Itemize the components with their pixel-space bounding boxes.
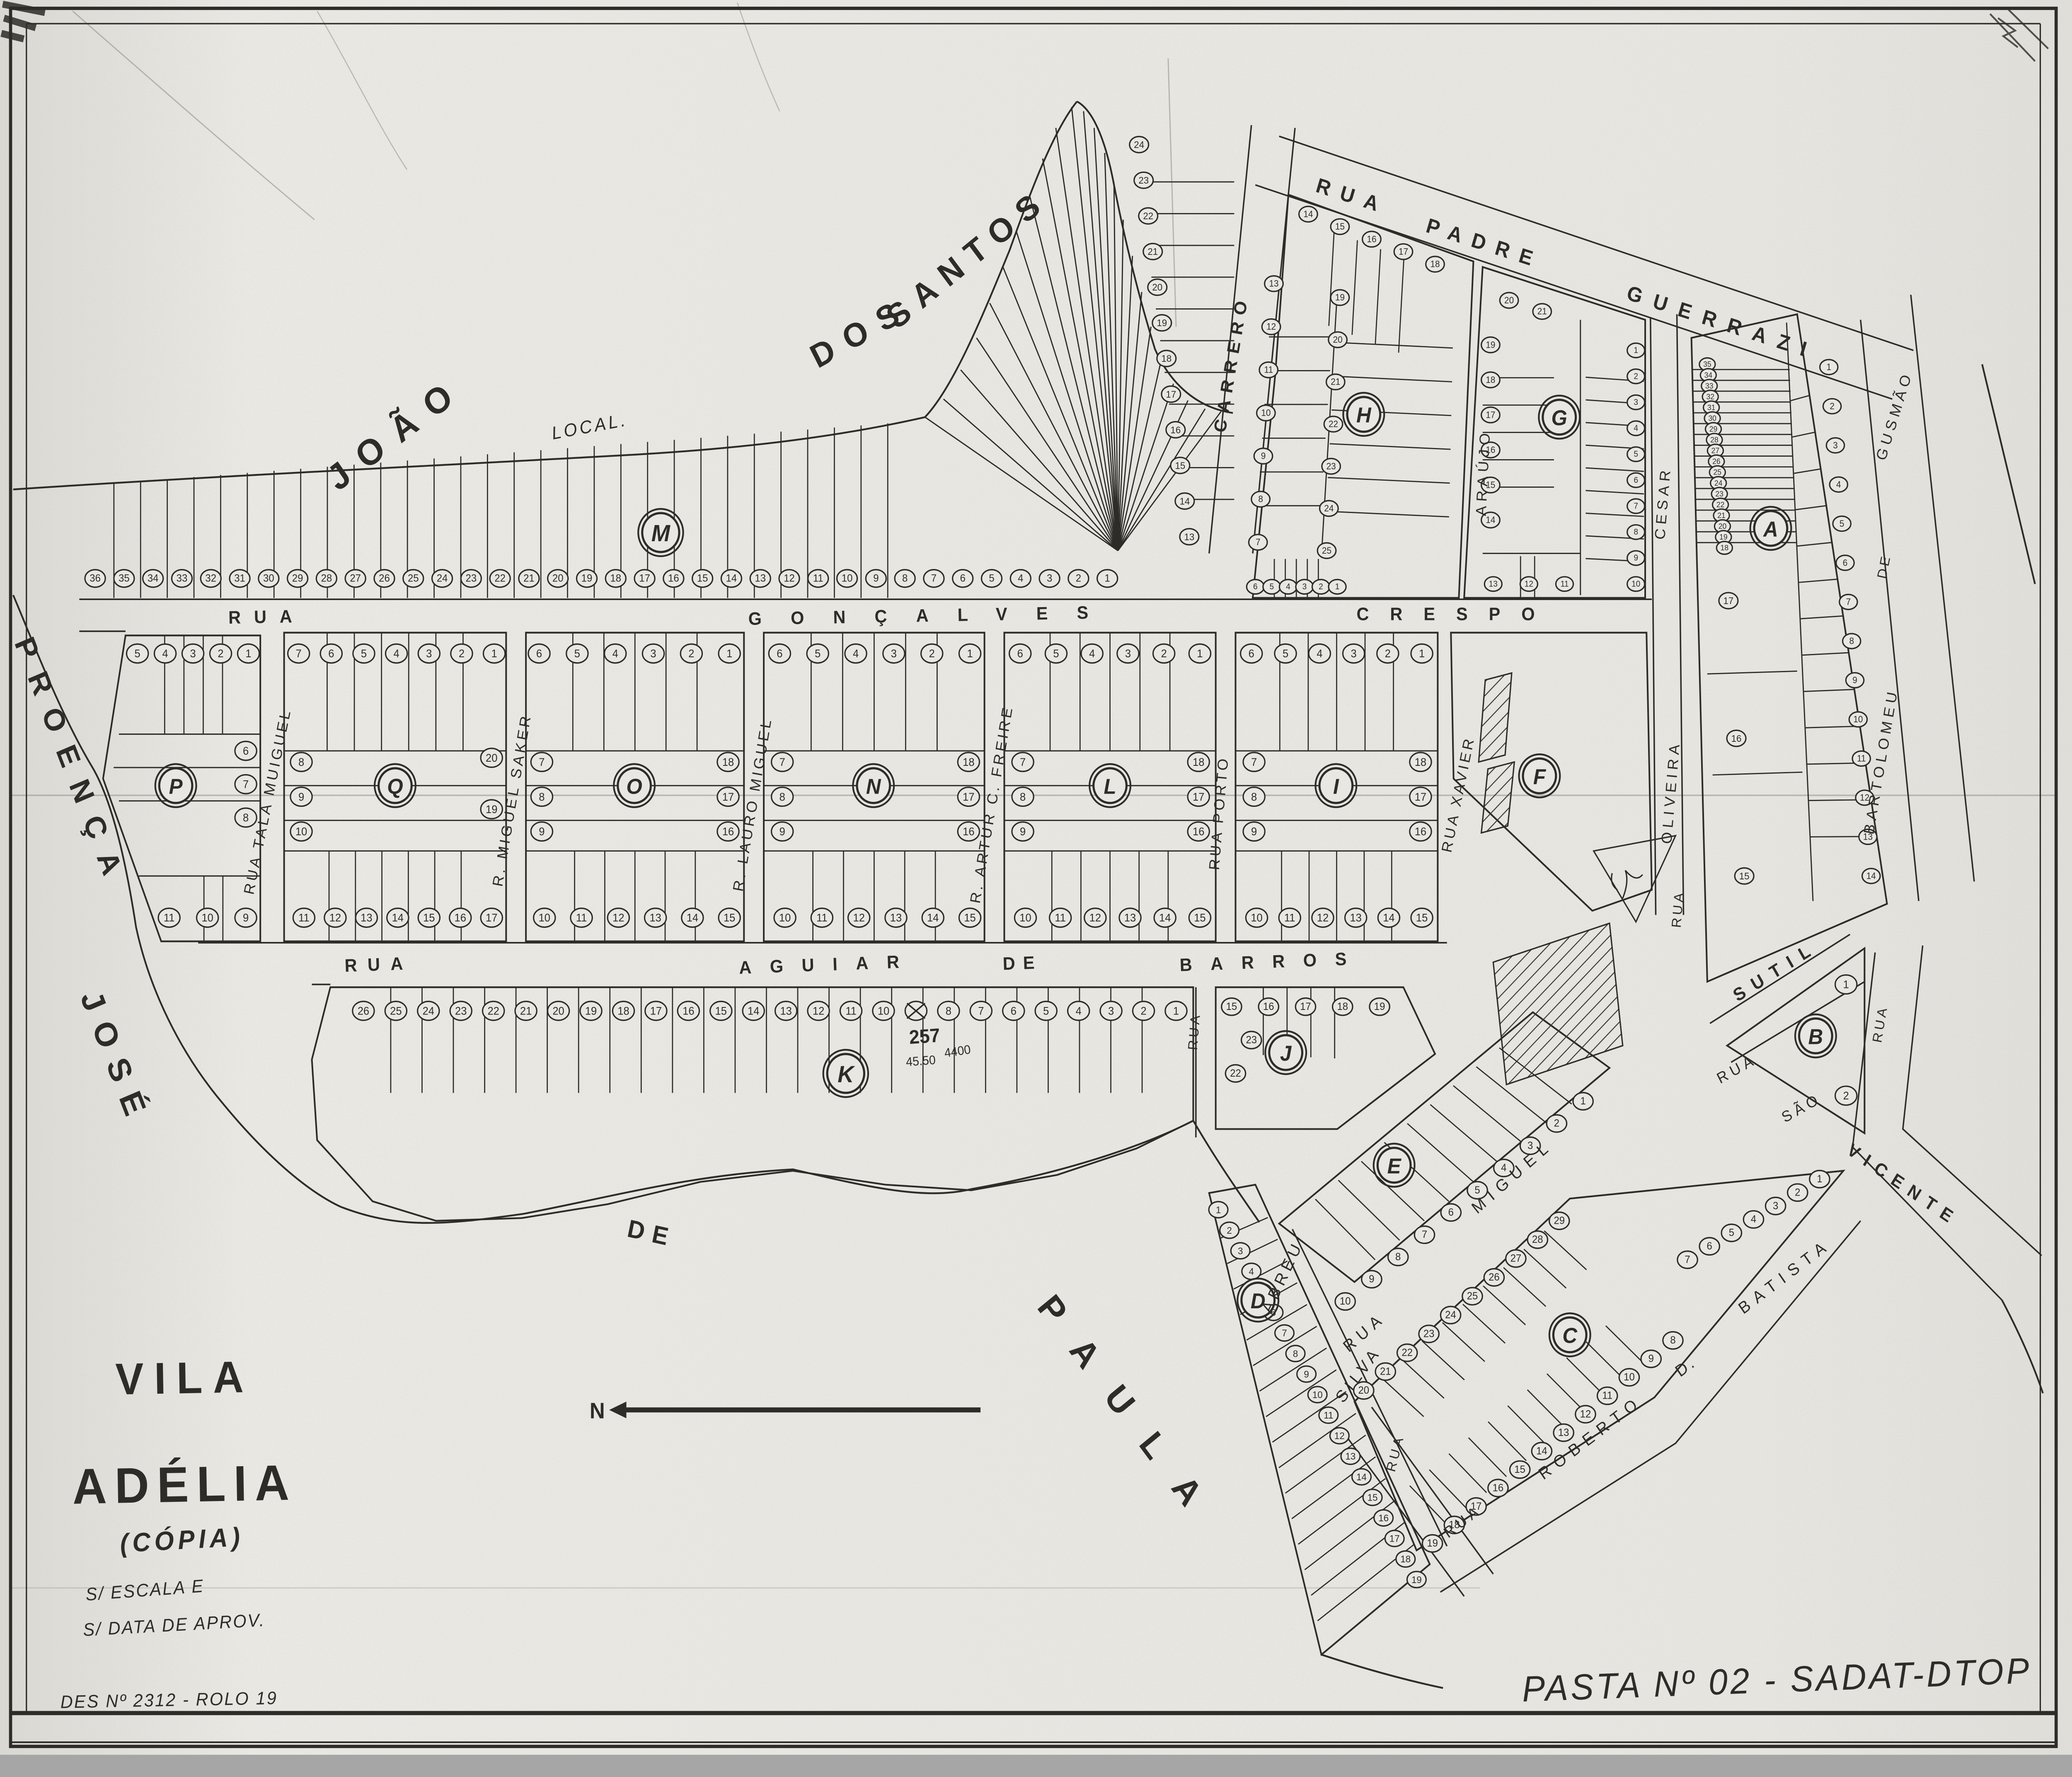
lot-H-11: 11 bbox=[1259, 362, 1278, 378]
svg-text:19: 19 bbox=[1719, 533, 1728, 542]
lot-N-4: 4 bbox=[845, 644, 867, 663]
svg-text:7: 7 bbox=[1251, 755, 1257, 768]
svg-text:16: 16 bbox=[1493, 1482, 1504, 1494]
svg-text:2: 2 bbox=[1076, 573, 1081, 584]
lot-Q-2: 2 bbox=[451, 644, 472, 663]
svg-text:4: 4 bbox=[1286, 582, 1290, 592]
lot-K-26: 26 bbox=[353, 1001, 374, 1020]
block-letter-H: H bbox=[1343, 393, 1384, 436]
lot-M-10: 10 bbox=[837, 570, 857, 587]
svg-text:22: 22 bbox=[1716, 501, 1725, 509]
lot-C-9: 9 bbox=[1641, 1350, 1661, 1368]
lot-C-4: 4 bbox=[1743, 1211, 1763, 1228]
lot-N-3: 3 bbox=[883, 644, 905, 663]
lot-I-13: 13 bbox=[1345, 908, 1367, 927]
svg-text:18: 18 bbox=[1721, 544, 1729, 552]
lot-G-21: 21 bbox=[1533, 304, 1552, 320]
lot-A-9: 9 bbox=[1846, 673, 1864, 688]
svg-text:22: 22 bbox=[1329, 419, 1338, 429]
svg-text:4: 4 bbox=[162, 647, 168, 660]
lot-J-23: 23 bbox=[1242, 1031, 1261, 1049]
lot-J-16: 16 bbox=[1259, 998, 1278, 1015]
svg-text:27: 27 bbox=[1510, 1253, 1522, 1264]
label-annotations-k_numbers-0: 257 bbox=[908, 1024, 941, 1048]
lot-L-1: 1 bbox=[1189, 644, 1210, 663]
lot-D-19: 19 bbox=[1407, 1571, 1426, 1588]
svg-text:2: 2 bbox=[929, 647, 935, 660]
lot-D-12: 12 bbox=[1330, 1428, 1349, 1444]
svg-text:12: 12 bbox=[1089, 911, 1101, 924]
svg-text:5: 5 bbox=[815, 647, 821, 660]
svg-text:G: G bbox=[1552, 406, 1567, 430]
lot-K-1: 1 bbox=[1165, 1001, 1187, 1020]
svg-text:6: 6 bbox=[1011, 1005, 1017, 1017]
svg-text:20: 20 bbox=[1504, 295, 1514, 305]
svg-text:11: 11 bbox=[845, 1005, 856, 1017]
svg-text:10: 10 bbox=[1853, 714, 1863, 725]
label-title-word1: VILA bbox=[115, 1352, 254, 1404]
lot-D-3: 3 bbox=[1231, 1243, 1250, 1259]
lot-N-15: 15 bbox=[959, 908, 980, 927]
svg-text:3: 3 bbox=[1302, 582, 1307, 592]
lot-J-18: 18 bbox=[1333, 998, 1353, 1015]
svg-text:23: 23 bbox=[1246, 1034, 1257, 1046]
svg-text:13: 13 bbox=[1184, 531, 1194, 542]
svg-text:9: 9 bbox=[1369, 1273, 1374, 1285]
lot-O-13: 13 bbox=[644, 908, 666, 927]
svg-text:14: 14 bbox=[392, 911, 404, 924]
lot-A-15: 15 bbox=[1735, 868, 1754, 884]
svg-text:7: 7 bbox=[1282, 1327, 1287, 1339]
label-north_indicator: N bbox=[590, 1399, 605, 1423]
svg-text:3: 3 bbox=[190, 647, 196, 660]
lot-G-13: 13 bbox=[1484, 577, 1502, 591]
svg-text:22: 22 bbox=[1402, 1347, 1413, 1358]
lot-G-12: 12 bbox=[1520, 577, 1537, 591]
svg-text:23: 23 bbox=[1138, 175, 1149, 186]
svg-text:15: 15 bbox=[697, 573, 708, 584]
svg-text:12: 12 bbox=[853, 911, 865, 924]
lot-N-7: 7 bbox=[772, 753, 793, 772]
lot-J-19: 19 bbox=[1370, 998, 1389, 1015]
lot-M-29: 29 bbox=[288, 570, 308, 587]
svg-text:7: 7 bbox=[1685, 1254, 1690, 1266]
svg-text:18: 18 bbox=[722, 755, 734, 768]
lot-G-1: 1 bbox=[1627, 343, 1645, 358]
svg-text:17: 17 bbox=[639, 573, 650, 584]
lot-M-28: 28 bbox=[316, 570, 336, 587]
svg-text:H: H bbox=[1356, 403, 1372, 427]
lot-S-13: 13 bbox=[1180, 529, 1199, 545]
svg-text:5: 5 bbox=[1043, 1005, 1049, 1017]
svg-text:13: 13 bbox=[1124, 911, 1136, 924]
lot-D-17: 17 bbox=[1385, 1530, 1404, 1547]
label-footer-drawing_ref: DES Nº 2312 - ROLO 19 bbox=[60, 1688, 278, 1712]
lot-P-5: 5 bbox=[126, 644, 148, 663]
block-letter-O: O bbox=[614, 764, 655, 807]
lot-N-2: 2 bbox=[921, 644, 943, 663]
lot-L-4: 4 bbox=[1081, 644, 1103, 663]
svg-text:11: 11 bbox=[1602, 1390, 1612, 1402]
lot-K-12: 12 bbox=[808, 1001, 829, 1020]
svg-text:17: 17 bbox=[1723, 595, 1734, 606]
lot-G-2: 2 bbox=[1627, 369, 1645, 384]
svg-text:2: 2 bbox=[1161, 647, 1167, 660]
svg-text:29: 29 bbox=[1554, 1215, 1565, 1227]
svg-text:8: 8 bbox=[1634, 528, 1638, 537]
svg-text:18: 18 bbox=[1161, 353, 1172, 364]
svg-text:10: 10 bbox=[779, 911, 791, 924]
lot-Q-20: 20 bbox=[481, 748, 502, 767]
svg-text:20: 20 bbox=[1152, 282, 1162, 293]
block-letter-B: B bbox=[1795, 1014, 1836, 1058]
lot-I-15: 15 bbox=[1411, 908, 1433, 927]
lot-Q-3: 3 bbox=[418, 644, 440, 663]
lot-H-3: 3 bbox=[1296, 579, 1313, 594]
svg-text:19: 19 bbox=[585, 1005, 597, 1017]
svg-text:1: 1 bbox=[1419, 647, 1425, 660]
scanned-plat-sheet: 3635343332313029282726252423222120191817… bbox=[0, 0, 2072, 1777]
svg-text:31: 31 bbox=[1707, 403, 1716, 412]
lot-Q-6: 6 bbox=[320, 644, 342, 663]
lot-H-9: 9 bbox=[1254, 448, 1273, 464]
svg-text:19: 19 bbox=[1157, 317, 1167, 329]
lot-S-20: 20 bbox=[1148, 279, 1167, 295]
lot-Q-13: 13 bbox=[356, 908, 377, 927]
svg-text:19: 19 bbox=[486, 803, 497, 816]
svg-text:23: 23 bbox=[1326, 461, 1336, 472]
svg-text:14: 14 bbox=[1303, 209, 1313, 219]
svg-text:13: 13 bbox=[1269, 278, 1278, 289]
svg-text:3: 3 bbox=[1108, 1005, 1114, 1017]
lot-C-7: 7 bbox=[1677, 1251, 1697, 1269]
lot-I-6: 6 bbox=[1241, 644, 1262, 663]
svg-text:4: 4 bbox=[1634, 424, 1638, 433]
svg-text:6: 6 bbox=[777, 647, 782, 660]
svg-text:6: 6 bbox=[1707, 1241, 1712, 1252]
lot-G-3: 3 bbox=[1627, 395, 1645, 409]
svg-text:M: M bbox=[651, 520, 671, 547]
lot-J-22: 22 bbox=[1225, 1065, 1245, 1082]
svg-text:F: F bbox=[1533, 765, 1547, 789]
svg-text:16: 16 bbox=[455, 911, 466, 924]
svg-text:9: 9 bbox=[1648, 1353, 1654, 1365]
lot-M-7: 7 bbox=[924, 570, 944, 587]
lot-N-17: 17 bbox=[958, 787, 979, 806]
svg-text:6: 6 bbox=[243, 744, 249, 757]
svg-text:2: 2 bbox=[459, 647, 465, 660]
svg-text:28: 28 bbox=[1532, 1234, 1543, 1246]
lot-A-18: 18 bbox=[1716, 542, 1732, 554]
svg-text:3: 3 bbox=[1047, 573, 1052, 584]
lot-O-14: 14 bbox=[682, 908, 703, 927]
lot-M-11: 11 bbox=[808, 570, 828, 587]
svg-text:23: 23 bbox=[1715, 489, 1723, 498]
lot-A-2: 2 bbox=[1823, 399, 1841, 414]
svg-text:19: 19 bbox=[581, 573, 593, 584]
svg-text:16: 16 bbox=[1378, 1512, 1389, 1523]
lot-Q-7: 7 bbox=[288, 644, 310, 663]
svg-text:9: 9 bbox=[243, 911, 249, 924]
svg-text:32: 32 bbox=[1706, 392, 1714, 401]
svg-text:22: 22 bbox=[494, 573, 506, 584]
svg-text:6: 6 bbox=[536, 647, 542, 660]
block-letter-A: A bbox=[1750, 507, 1791, 550]
lot-M-21: 21 bbox=[519, 570, 539, 587]
svg-text:7: 7 bbox=[1256, 537, 1261, 547]
svg-text:24: 24 bbox=[1134, 139, 1144, 150]
svg-text:18: 18 bbox=[963, 755, 974, 768]
lot-K-24: 24 bbox=[418, 1001, 439, 1020]
svg-text:26: 26 bbox=[1489, 1272, 1500, 1283]
svg-text:11: 11 bbox=[1561, 579, 1569, 589]
svg-text:1: 1 bbox=[967, 647, 973, 660]
lot-S-19: 19 bbox=[1152, 315, 1172, 331]
lot-N-6: 6 bbox=[769, 644, 790, 663]
svg-text:8: 8 bbox=[539, 790, 545, 803]
label-streets-aguiar_de_barros-0: RUA bbox=[344, 953, 414, 976]
block-letter-E: E bbox=[1374, 1144, 1415, 1187]
svg-text:7: 7 bbox=[539, 755, 545, 768]
label-streets-goncalves_crespo-2: CRESPO bbox=[1356, 604, 1556, 624]
lot-K-2: 2 bbox=[1133, 1001, 1154, 1020]
svg-text:24: 24 bbox=[423, 1005, 434, 1017]
svg-text:11: 11 bbox=[1055, 911, 1065, 924]
lot-H-14: 14 bbox=[1299, 206, 1318, 222]
svg-text:10: 10 bbox=[878, 1005, 889, 1017]
lot-I-17: 17 bbox=[1410, 787, 1431, 806]
svg-text:4: 4 bbox=[1089, 647, 1095, 660]
lot-M-36: 36 bbox=[85, 570, 105, 587]
lot-A-1: 1 bbox=[1820, 360, 1838, 375]
svg-text:18: 18 bbox=[1415, 755, 1426, 768]
svg-text:13: 13 bbox=[1489, 579, 1498, 589]
lot-A-7: 7 bbox=[1840, 594, 1857, 609]
svg-text:23: 23 bbox=[1423, 1328, 1435, 1340]
lot-L-12: 12 bbox=[1084, 908, 1106, 927]
lot-I-5: 5 bbox=[1275, 644, 1296, 663]
svg-text:16: 16 bbox=[1367, 234, 1376, 245]
svg-text:A: A bbox=[1762, 517, 1778, 541]
svg-text:35: 35 bbox=[119, 573, 130, 584]
lot-C-10: 10 bbox=[1619, 1369, 1639, 1386]
svg-text:17: 17 bbox=[650, 1005, 662, 1017]
svg-text:15: 15 bbox=[724, 911, 735, 924]
lot-O-8: 8 bbox=[531, 787, 552, 806]
svg-text:25: 25 bbox=[408, 573, 419, 584]
lot-M-14: 14 bbox=[721, 570, 741, 587]
svg-text:14: 14 bbox=[927, 911, 939, 924]
block-letter-I: I bbox=[1315, 764, 1356, 807]
svg-text:17: 17 bbox=[1193, 790, 1204, 803]
svg-text:25: 25 bbox=[390, 1005, 402, 1017]
svg-text:18: 18 bbox=[1430, 259, 1440, 269]
svg-text:14: 14 bbox=[1486, 515, 1495, 525]
lot-I-11: 11 bbox=[1279, 908, 1300, 927]
svg-text:L: L bbox=[1104, 774, 1116, 798]
svg-text:12: 12 bbox=[329, 911, 341, 924]
lot-D-2: 2 bbox=[1220, 1222, 1239, 1238]
svg-text:I: I bbox=[1333, 774, 1339, 798]
lot-D-14: 14 bbox=[1352, 1469, 1371, 1485]
svg-text:3: 3 bbox=[1634, 398, 1638, 407]
lot-S-22: 22 bbox=[1139, 208, 1158, 224]
svg-text:21: 21 bbox=[1537, 306, 1547, 317]
lot-Q-19: 19 bbox=[481, 800, 502, 819]
lot-L-14: 14 bbox=[1154, 908, 1176, 927]
svg-text:1: 1 bbox=[1173, 1005, 1179, 1017]
svg-text:11: 11 bbox=[1284, 911, 1295, 924]
svg-text:10: 10 bbox=[201, 911, 213, 924]
lot-I-3: 3 bbox=[1343, 644, 1364, 663]
svg-text:3: 3 bbox=[426, 647, 432, 660]
lot-Q-9: 9 bbox=[290, 787, 312, 806]
lot-N-9: 9 bbox=[772, 822, 793, 841]
svg-text:5: 5 bbox=[1053, 647, 1059, 660]
lot-Q-4: 4 bbox=[385, 644, 407, 663]
svg-text:P: P bbox=[169, 774, 183, 798]
svg-text:16: 16 bbox=[1415, 825, 1426, 838]
svg-text:7: 7 bbox=[1422, 1229, 1427, 1241]
svg-text:21: 21 bbox=[1717, 511, 1726, 520]
svg-text:13: 13 bbox=[755, 573, 766, 584]
lot-M-1: 1 bbox=[1097, 570, 1118, 587]
svg-text:C: C bbox=[1562, 1323, 1578, 1347]
lot-M-13: 13 bbox=[750, 570, 770, 587]
label-streets-aguiar_de_barros-2: DE bbox=[1002, 952, 1043, 974]
lot-M-4: 4 bbox=[1010, 570, 1031, 587]
lot-G-18: 18 bbox=[1481, 372, 1500, 388]
svg-text:16: 16 bbox=[668, 573, 679, 584]
lot-H-17: 17 bbox=[1394, 244, 1413, 260]
lot-M-26: 26 bbox=[374, 570, 395, 587]
svg-text:7: 7 bbox=[243, 778, 249, 791]
svg-text:1: 1 bbox=[245, 647, 251, 660]
svg-text:5: 5 bbox=[135, 647, 140, 660]
lot-Q-16: 16 bbox=[450, 908, 471, 927]
lot-Q-8: 8 bbox=[290, 753, 312, 772]
svg-text:8: 8 bbox=[1293, 1348, 1298, 1359]
block-letter-F: F bbox=[1519, 754, 1560, 797]
svg-text:34: 34 bbox=[1704, 371, 1713, 380]
lot-A-4: 4 bbox=[1830, 477, 1847, 492]
block-letter-J: J bbox=[1265, 1031, 1306, 1074]
lot-Q-5: 5 bbox=[353, 644, 375, 663]
plat-root: 3635343332313029282726252423222120191817… bbox=[0, 0, 2072, 1777]
svg-text:2: 2 bbox=[1830, 401, 1835, 412]
lot-L-11: 11 bbox=[1050, 908, 1071, 927]
svg-text:19: 19 bbox=[1486, 340, 1495, 350]
svg-text:11: 11 bbox=[1857, 753, 1866, 764]
lot-K-15: 15 bbox=[710, 1001, 732, 1020]
lot-K-23: 23 bbox=[450, 1001, 472, 1020]
lot-M-20: 20 bbox=[548, 570, 568, 587]
lot-E-2: 2 bbox=[1547, 1115, 1566, 1132]
lot-H-2: 2 bbox=[1312, 579, 1329, 594]
svg-text:15: 15 bbox=[1175, 460, 1185, 471]
lot-I-4: 4 bbox=[1309, 644, 1330, 663]
lot-M-8: 8 bbox=[895, 570, 915, 587]
lot-M-2: 2 bbox=[1068, 570, 1089, 587]
lot-G-10: 10 bbox=[1627, 577, 1645, 591]
lot-D-9: 9 bbox=[1297, 1366, 1316, 1382]
lot-P-4: 4 bbox=[154, 644, 176, 663]
lot-H-21: 21 bbox=[1326, 374, 1345, 390]
label-streets-rua_unnamed: RUA bbox=[1185, 1012, 1203, 1051]
lot-D-10: 10 bbox=[1308, 1387, 1327, 1403]
lot-G-4: 4 bbox=[1627, 421, 1645, 436]
lot-I-2: 2 bbox=[1377, 644, 1399, 663]
svg-text:14: 14 bbox=[726, 573, 737, 584]
svg-text:2: 2 bbox=[1319, 582, 1323, 592]
lot-M-35: 35 bbox=[114, 570, 134, 587]
svg-text:4: 4 bbox=[1317, 647, 1322, 660]
svg-text:5: 5 bbox=[1634, 450, 1638, 459]
lot-L-5: 5 bbox=[1045, 644, 1067, 663]
lot-H-1: 1 bbox=[1329, 579, 1346, 594]
lot-I-8: 8 bbox=[1243, 787, 1265, 806]
lot-C-8: 8 bbox=[1663, 1332, 1683, 1349]
lot-Q-11: 11 bbox=[293, 908, 315, 927]
svg-text:21: 21 bbox=[1147, 246, 1158, 257]
svg-text:16: 16 bbox=[722, 825, 734, 838]
block-letter-G: G bbox=[1539, 396, 1580, 439]
svg-text:19: 19 bbox=[1335, 293, 1345, 303]
lot-S-14: 14 bbox=[1175, 493, 1194, 509]
lot-O-17: 17 bbox=[717, 787, 739, 806]
svg-text:12: 12 bbox=[784, 573, 795, 584]
svg-text:26: 26 bbox=[358, 1005, 369, 1017]
svg-text:25: 25 bbox=[1714, 468, 1722, 477]
lot-C-12: 12 bbox=[1576, 1406, 1595, 1423]
lot-D-15: 15 bbox=[1363, 1489, 1382, 1506]
lot-M-25: 25 bbox=[403, 570, 424, 587]
lot-M-6: 6 bbox=[953, 570, 973, 587]
svg-text:2: 2 bbox=[1227, 1225, 1232, 1236]
lot-S-21: 21 bbox=[1143, 244, 1162, 260]
svg-text:17: 17 bbox=[1399, 247, 1408, 257]
lot-G-9: 9 bbox=[1627, 551, 1645, 565]
svg-text:28: 28 bbox=[1710, 436, 1719, 444]
svg-text:8: 8 bbox=[1251, 790, 1257, 803]
lot-Q-1: 1 bbox=[483, 644, 505, 663]
svg-text:11: 11 bbox=[1324, 1410, 1333, 1421]
svg-text:22: 22 bbox=[1143, 211, 1153, 222]
svg-text:13: 13 bbox=[1558, 1427, 1569, 1438]
svg-text:8: 8 bbox=[1849, 636, 1854, 646]
svg-text:12: 12 bbox=[612, 911, 624, 924]
lot-L-9: 9 bbox=[1012, 822, 1034, 841]
block-letter-K: K bbox=[823, 1050, 868, 1097]
svg-text:12: 12 bbox=[1580, 1409, 1591, 1420]
lot-A-6: 6 bbox=[1836, 555, 1854, 570]
lot-P-1: 1 bbox=[237, 644, 259, 663]
svg-text:16: 16 bbox=[1731, 733, 1742, 744]
lot-C-16: 16 bbox=[1488, 1479, 1508, 1497]
lot-K-3: 3 bbox=[1100, 1001, 1122, 1020]
svg-text:25: 25 bbox=[1467, 1290, 1478, 1302]
lot-O-3: 3 bbox=[642, 644, 664, 663]
svg-text:5: 5 bbox=[1840, 518, 1844, 529]
svg-text:21: 21 bbox=[520, 1005, 532, 1017]
svg-text:6: 6 bbox=[1253, 582, 1258, 592]
svg-text:16: 16 bbox=[1193, 825, 1204, 838]
lot-N-14: 14 bbox=[922, 908, 944, 927]
lot-I-1: 1 bbox=[1411, 644, 1433, 663]
svg-text:10: 10 bbox=[1631, 579, 1640, 589]
svg-text:1: 1 bbox=[1197, 647, 1203, 660]
scan-grain bbox=[0, 0, 2072, 1777]
